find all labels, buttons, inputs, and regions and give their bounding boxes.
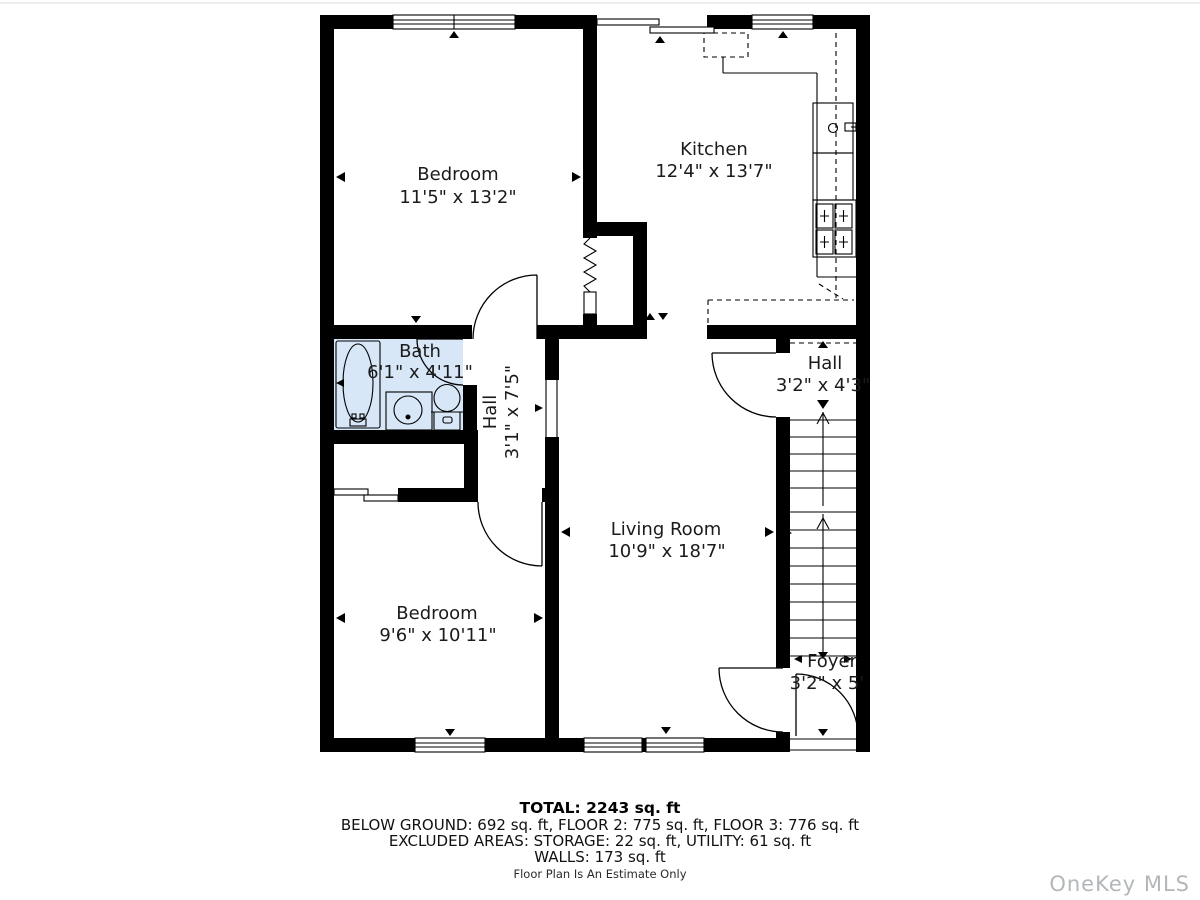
door-bedroom1 bbox=[473, 275, 537, 339]
label-hall-right-dims: 3'2" x 4'3" bbox=[776, 375, 870, 396]
door-hall-right bbox=[712, 353, 776, 417]
label-living-name: Living Room bbox=[611, 519, 722, 540]
label-kitchen-name: Kitchen bbox=[680, 139, 748, 160]
label-bath-name: Bath bbox=[399, 341, 441, 362]
door-bedroom2 bbox=[478, 502, 542, 566]
label-foyer-dims: 3'2" x 5' bbox=[790, 673, 865, 694]
label-bedroom2-dims: 9'6" x 10'11" bbox=[379, 625, 496, 646]
label-foyer-name: Foyer bbox=[807, 651, 857, 672]
doors bbox=[417, 275, 858, 736]
stove-icon bbox=[813, 200, 856, 257]
stairs bbox=[790, 400, 856, 659]
label-hall-center-dims: 3'1" x 7'5" bbox=[502, 365, 523, 459]
label-hall-right-name: Hall bbox=[808, 353, 843, 374]
closet-slider bbox=[334, 488, 398, 502]
label-bath-dims: 6'1" x 4'11" bbox=[367, 362, 473, 383]
label-kitchen-dims: 12'4" x 13'7" bbox=[655, 161, 772, 182]
label-bedroom1-name: Bedroom bbox=[417, 164, 498, 185]
window-living-1 bbox=[584, 738, 642, 752]
label-bedroom2-name: Bedroom bbox=[396, 603, 477, 624]
kitchen-cabinet bbox=[813, 153, 853, 200]
wall-opening-thin bbox=[584, 292, 596, 314]
summary-block: TOTAL: 2243 sq. ft BELOW GROUND: 692 sq.… bbox=[341, 799, 859, 881]
window-kitchen bbox=[752, 15, 813, 29]
window-bedroom2 bbox=[415, 738, 485, 752]
summary-total: TOTAL: 2243 sq. ft bbox=[520, 799, 681, 817]
door-foyer-living bbox=[719, 668, 783, 732]
sliding-door-top bbox=[597, 15, 714, 33]
cased-opening bbox=[546, 380, 557, 437]
watermark: OneKey MLS bbox=[1049, 872, 1190, 896]
window-living-2 bbox=[646, 738, 704, 752]
summary-walls: WALLS: 173 sq. ft bbox=[534, 848, 666, 866]
entry-opening bbox=[790, 738, 856, 752]
label-hall-center-name: Hall bbox=[480, 395, 501, 430]
summary-disclaimer: Floor Plan Is An Estimate Only bbox=[513, 867, 686, 881]
zigzag-break bbox=[584, 238, 596, 292]
window-bedroom1 bbox=[393, 15, 515, 29]
floor-plan-svg: Bedroom 11'5" x 13'2" Kitchen 12'4" x 13… bbox=[0, 0, 1200, 900]
label-living-dims: 10'9" x 18'7" bbox=[608, 541, 725, 562]
label-bedroom1-dims: 11'5" x 13'2" bbox=[399, 187, 516, 208]
